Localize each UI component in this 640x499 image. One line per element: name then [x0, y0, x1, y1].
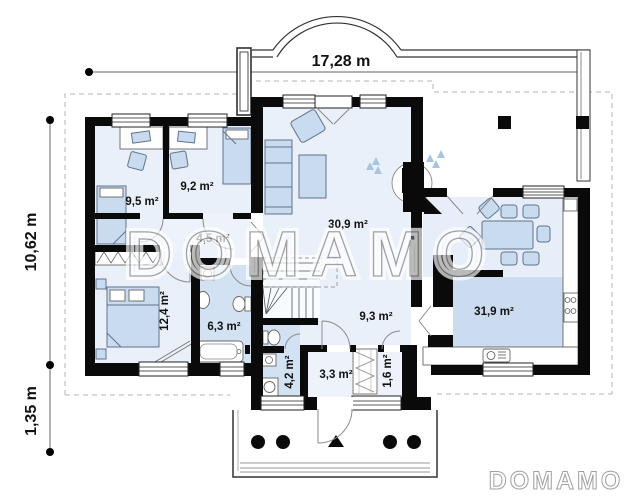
terrace-roof-edge — [577, 50, 590, 181]
nightstand — [96, 279, 106, 289]
terrace-column — [498, 116, 511, 129]
label-bedroom-3: 12,4 m² — [159, 291, 171, 331]
chair — [501, 205, 517, 218]
small-sink — [262, 354, 276, 366]
floor-plan-drawing: 9,5 m² 9,2 m² 4,5 m² 30,9 m² 12,4 m² 6,3… — [0, 0, 640, 499]
terrace-door-opening — [447, 187, 493, 197]
label-bathroom: 6,3 m² — [207, 321, 240, 333]
dimension-dot — [46, 448, 54, 456]
porch — [233, 410, 437, 477]
chair — [501, 252, 517, 265]
bathtub — [197, 341, 243, 362]
appliance — [564, 199, 577, 211]
window — [112, 114, 150, 127]
toilet — [263, 330, 280, 345]
chair — [523, 252, 539, 265]
stairwell-tall-window — [237, 48, 251, 115]
label-kitchen-dining: 31,9 m² — [474, 306, 514, 318]
door-hall-kitchen — [419, 306, 431, 336]
dimension-dot — [46, 361, 54, 369]
dimension-left-offset: 1,35 m — [23, 386, 40, 436]
coffee-table — [299, 155, 326, 198]
floor-plan-page: 9,5 m² 9,2 m² 4,5 m² 30,9 m² 12,4 m² 6,3… — [0, 0, 640, 499]
chair — [170, 151, 189, 170]
porch-column — [383, 435, 397, 449]
washing-machine — [261, 378, 278, 396]
entry-wardrobe — [353, 349, 377, 394]
toilet — [233, 297, 251, 312]
window — [283, 95, 315, 108]
sofa — [265, 140, 292, 214]
double-bed — [107, 287, 159, 347]
label-closet: 1,6 m² — [382, 354, 394, 387]
window — [261, 396, 304, 410]
balcony-window-opening — [315, 96, 352, 108]
kitchen-sink — [483, 349, 510, 362]
stove — [564, 293, 578, 322]
porch-column — [407, 435, 421, 449]
dimension-top-width: 17,28 m — [312, 53, 371, 70]
porch-column — [251, 435, 265, 449]
window — [360, 95, 386, 108]
window — [188, 114, 227, 127]
window — [220, 362, 244, 376]
chair — [537, 226, 550, 242]
nightstand — [96, 349, 106, 359]
chair — [127, 151, 147, 171]
entrance-door-opening — [317, 397, 353, 410]
label-bedroom-2: 9,2 m² — [180, 181, 213, 193]
porch-column — [276, 435, 290, 449]
logo-bottom-right: DOMAMO — [489, 467, 624, 495]
dimension-left-height: 10,62 m — [23, 213, 40, 272]
label-hall: 9,3 m² — [359, 311, 392, 323]
dimension-dot — [46, 116, 54, 124]
window — [483, 363, 533, 376]
boiler — [245, 345, 250, 354]
svg-text:DOMAMO: DOMAMO — [126, 218, 497, 290]
window — [139, 362, 188, 376]
window — [352, 396, 401, 410]
watermark-center: DOMAMO DOMAMO — [126, 218, 497, 290]
label-wc: 4,2 m² — [284, 355, 296, 388]
window — [523, 186, 564, 198]
chair — [523, 205, 539, 218]
terrace-column — [576, 116, 589, 129]
dimension-dot — [85, 68, 93, 76]
label-bedroom-1: 9,5 m² — [125, 196, 158, 208]
label-entry: 3,3 m² — [319, 369, 352, 381]
single-bed — [223, 128, 251, 184]
